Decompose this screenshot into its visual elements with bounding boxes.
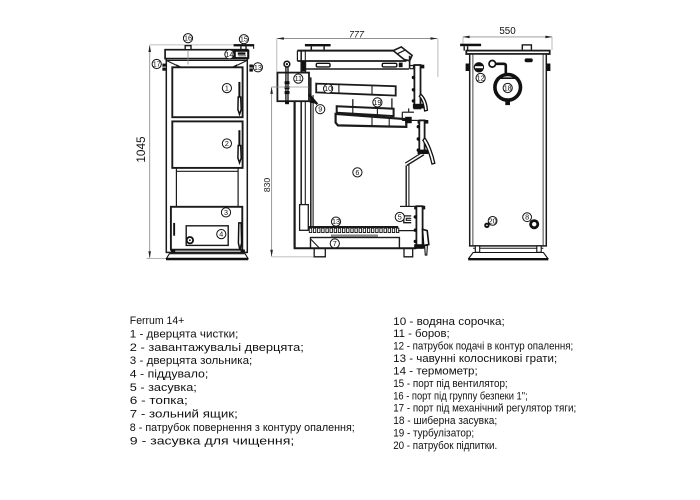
svg-text:13: 13	[332, 217, 340, 226]
svg-text:10 - водяна сорочка;: 10 - водяна сорочка;	[393, 316, 505, 328]
svg-text:14 - термометр;: 14 - термометр;	[393, 366, 478, 378]
svg-text:7: 7	[333, 239, 337, 248]
svg-text:4 - піддувало;: 4 - піддувало;	[130, 369, 209, 381]
svg-text:15: 15	[240, 35, 248, 44]
svg-text:19 - турбулізатор;: 19 - турбулізатор;	[393, 428, 474, 440]
svg-text:1 - дверцята чистки;: 1 - дверцята чистки;	[130, 329, 238, 341]
svg-text:13 - чавунні колосникові грати: 13 - чавунні колосникові грати;	[393, 353, 557, 365]
svg-text:4: 4	[219, 230, 223, 239]
svg-text:6 - топка;: 6 - топка;	[130, 395, 188, 407]
svg-text:2: 2	[225, 139, 229, 148]
svg-text:12: 12	[477, 74, 485, 83]
svg-text:3 - дверцята зольника;: 3 - дверцята зольника;	[130, 355, 253, 367]
svg-text:14: 14	[225, 50, 233, 59]
svg-text:20: 20	[489, 216, 497, 225]
svg-text:6: 6	[355, 168, 359, 177]
svg-text:16: 16	[184, 34, 192, 43]
svg-text:Ferrum 14+: Ferrum 14+	[130, 315, 185, 327]
svg-text:16 - порт під группу безпеки 1: 16 - порт під группу безпеки 1";	[393, 390, 528, 402]
svg-text:11: 11	[295, 74, 302, 83]
svg-text:8: 8	[525, 213, 529, 222]
svg-text:7 - зольний ящик;: 7 - зольний ящик;	[130, 409, 238, 421]
svg-text:1045: 1045	[134, 136, 148, 163]
svg-text:18: 18	[504, 84, 512, 93]
svg-text:15 - порт під вентилятор;: 15 - порт під вентилятор;	[393, 378, 508, 390]
svg-text:10: 10	[324, 84, 332, 93]
svg-text:20 - патрубок підпитки.: 20 - патрубок підпитки.	[393, 440, 497, 452]
svg-text:830: 830	[262, 178, 272, 193]
svg-text:3: 3	[224, 208, 228, 217]
svg-text:17 - порт під механічний регул: 17 - порт під механічний регулятор тяги;	[393, 403, 576, 415]
svg-text:1: 1	[225, 84, 229, 93]
svg-text:13: 13	[254, 63, 262, 72]
svg-text:5: 5	[398, 213, 402, 222]
svg-text:9 - засувка для чищення;: 9 - засувка для чищення;	[130, 435, 294, 447]
svg-text:9: 9	[318, 105, 322, 114]
svg-text:18 - шиберна засувка;: 18 - шиберна засувка;	[393, 415, 497, 427]
svg-text:550: 550	[499, 26, 516, 37]
svg-text:777: 777	[349, 30, 365, 40]
svg-text:12 - патрубок подачі в контур: 12 - патрубок подачі в контур опалення;	[393, 341, 573, 353]
svg-text:17: 17	[153, 60, 161, 69]
svg-text:2 - завантажувальі дверцята;: 2 - завантажувальі дверцята;	[130, 342, 304, 354]
svg-text:11 - боров;: 11 - боров;	[393, 328, 450, 340]
svg-text:8 - патрубок повернення з конт: 8 - патрубок повернення з контуру опален…	[130, 422, 355, 434]
svg-text:5 - засувка;: 5 - засувка;	[130, 382, 197, 394]
svg-text:19: 19	[373, 98, 381, 107]
